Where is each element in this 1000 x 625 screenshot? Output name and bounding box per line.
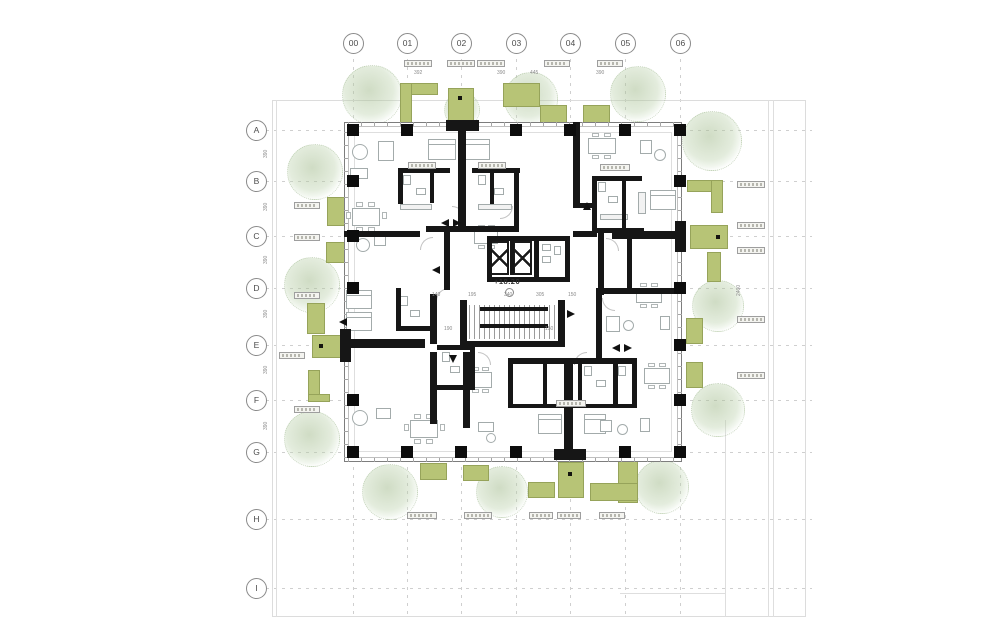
furniture-item — [606, 316, 620, 332]
furniture-item — [542, 244, 551, 251]
furniture-round-table — [654, 149, 666, 161]
wall-segment — [470, 345, 475, 389]
dimension-text: 2400 — [737, 285, 742, 296]
furniture-chair — [382, 212, 387, 219]
wall-segment — [675, 221, 686, 252]
annotation-label — [557, 512, 581, 519]
grid-marker-row-E: E — [246, 335, 267, 356]
annotation-label — [294, 234, 320, 241]
wall-segment — [430, 294, 437, 344]
structural-column — [674, 394, 686, 406]
elevator-shaft — [490, 241, 509, 275]
direction-arrow — [449, 355, 457, 363]
stair-flight-edge — [480, 324, 548, 328]
furniture-chair — [356, 202, 363, 207]
annotation-label — [737, 222, 765, 229]
wall-segment — [444, 232, 450, 290]
planter-tree-dot — [716, 235, 720, 239]
annotation-label — [737, 181, 765, 188]
site-line — [773, 100, 774, 617]
furniture-item — [660, 316, 670, 330]
furniture-round-table — [617, 424, 628, 435]
annotation-label — [544, 60, 570, 67]
grid-marker-row-C: C — [246, 226, 267, 247]
tree — [610, 66, 666, 122]
dimension-text: 392 — [414, 71, 422, 76]
furniture-item — [352, 208, 380, 226]
furniture-item — [618, 366, 626, 376]
furniture-counter — [400, 204, 432, 210]
site-line — [725, 420, 726, 617]
planter — [528, 482, 555, 498]
furniture-item — [450, 366, 460, 373]
furniture-item — [400, 296, 408, 306]
furniture-bed — [462, 139, 490, 160]
wall-segment — [514, 168, 519, 232]
planter — [307, 303, 325, 334]
furniture-chair — [404, 424, 409, 431]
furniture-round-table — [486, 433, 496, 443]
furniture-chair — [440, 424, 445, 431]
wall-segment — [430, 352, 437, 424]
furniture-bed — [428, 139, 456, 160]
structural-column — [674, 175, 686, 187]
dimension-text: 150 — [568, 293, 576, 298]
furniture-item — [542, 256, 551, 263]
wall-segment — [430, 173, 434, 203]
planter-tree-dot — [458, 96, 462, 100]
furniture-chair — [482, 389, 489, 393]
furniture-item — [478, 175, 486, 185]
structural-column — [401, 446, 413, 458]
structural-column — [674, 339, 686, 351]
planter — [690, 225, 728, 249]
wall-segment — [613, 358, 618, 408]
structural-column — [347, 446, 359, 458]
dimension-text: 445 — [530, 71, 538, 76]
wall-segment — [446, 120, 479, 131]
grid-marker-row-G: G — [246, 442, 267, 463]
annotation-label — [294, 292, 320, 299]
site-line — [276, 100, 277, 617]
annotation-label — [478, 162, 506, 169]
furniture-chair — [648, 385, 655, 389]
dimension-text: 390 — [264, 310, 269, 318]
dimension-text: 390 — [264, 366, 269, 374]
annotation-label — [737, 372, 765, 379]
structural-column — [674, 446, 686, 458]
tree — [635, 460, 689, 514]
planter — [558, 462, 584, 498]
furniture-item — [374, 236, 386, 246]
furniture-chair — [426, 439, 433, 444]
furniture-item — [608, 196, 618, 203]
site-line — [620, 593, 725, 594]
wall-segment — [592, 176, 597, 233]
furniture-round-table — [352, 410, 368, 426]
planter — [590, 483, 638, 501]
annotation-label — [408, 162, 436, 169]
furniture-item — [494, 188, 504, 195]
annotation-label — [447, 60, 475, 67]
furniture-chair — [478, 245, 485, 249]
wall-segment — [490, 168, 494, 204]
furniture-item — [478, 422, 494, 432]
grid-marker-row-H: H — [246, 509, 267, 530]
planter-tree-dot — [568, 472, 572, 476]
planter-tree-dot — [319, 344, 323, 348]
wall-segment — [627, 233, 632, 288]
wall-segment — [592, 176, 642, 181]
furniture-item — [410, 310, 420, 317]
tree — [284, 411, 340, 467]
tree — [691, 383, 745, 437]
structural-column — [401, 124, 413, 136]
direction-arrow — [583, 202, 591, 210]
annotation-label — [597, 60, 623, 67]
wall-segment — [460, 341, 565, 347]
structural-column — [674, 124, 686, 136]
grid-marker-col-00: 00 — [343, 33, 364, 54]
dimension-text: 340 — [504, 293, 512, 298]
furniture-chair — [659, 363, 666, 367]
furniture-chair — [651, 283, 658, 287]
furniture-item — [588, 138, 616, 154]
annotation-label — [556, 400, 586, 407]
furniture-counter — [638, 192, 646, 214]
structural-column — [619, 124, 631, 136]
grid-marker-col-05: 05 — [615, 33, 636, 54]
wall-segment — [534, 236, 539, 282]
planter — [707, 252, 721, 282]
wall-segment — [426, 226, 518, 232]
structural-column — [347, 394, 359, 406]
grid-marker-col-02: 02 — [451, 33, 472, 54]
furniture-item — [378, 141, 394, 161]
structural-column — [619, 446, 631, 458]
wall-segment — [596, 288, 682, 294]
wall-segment — [508, 358, 513, 408]
planter — [420, 463, 447, 480]
furniture-item — [644, 368, 670, 384]
dimension-text: 390 — [497, 71, 505, 76]
furniture-item — [598, 182, 606, 192]
furniture-chair — [346, 212, 351, 219]
structural-column — [674, 282, 686, 294]
structural-column — [510, 446, 522, 458]
dimension-text: 390 — [264, 203, 269, 211]
dimension-text: 390 — [264, 150, 269, 158]
wall-segment — [622, 181, 626, 233]
furniture-item — [640, 140, 652, 154]
annotation-label — [279, 352, 305, 359]
furniture-chair — [648, 363, 655, 367]
structural-column — [347, 175, 359, 187]
grid-marker-row-I: I — [246, 578, 267, 599]
site-line — [768, 100, 769, 617]
dimension-text: 190 — [444, 327, 452, 332]
planter — [463, 465, 489, 481]
grid-marker-col-03: 03 — [506, 33, 527, 54]
facade-mullions-bottom — [348, 458, 678, 462]
furniture-round-table — [623, 320, 634, 331]
grid-marker-row-D: D — [246, 278, 267, 299]
annotation-label — [529, 512, 553, 519]
wall-segment — [596, 294, 602, 358]
annotation-label — [464, 512, 492, 519]
planter — [686, 362, 703, 388]
furniture-chair — [592, 155, 599, 159]
annotation-label — [294, 406, 320, 413]
structural-column — [347, 124, 359, 136]
furniture-chair — [651, 304, 658, 308]
furniture-chair — [604, 133, 611, 137]
furniture-chair — [604, 155, 611, 159]
annotation-label — [407, 512, 437, 519]
furniture-item — [584, 366, 592, 376]
furniture-bed — [538, 414, 562, 434]
furniture-item — [640, 418, 650, 432]
structural-column — [347, 282, 359, 294]
wall-segment — [344, 339, 420, 347]
wall-segment — [396, 326, 434, 331]
annotation-label — [737, 247, 765, 254]
furniture-chair — [482, 367, 489, 371]
furniture-item — [596, 380, 606, 387]
direction-arrow — [432, 266, 440, 274]
direction-arrow — [567, 310, 575, 318]
wall-segment — [487, 236, 492, 282]
furniture-chair — [368, 202, 375, 207]
direction-arrow — [612, 344, 620, 352]
furniture-chair — [414, 439, 421, 444]
furniture-chair — [414, 414, 421, 419]
furniture-item — [416, 188, 426, 195]
wall-segment — [558, 300, 565, 346]
wall-segment — [565, 236, 570, 282]
structural-column — [564, 124, 576, 136]
annotation-label — [737, 316, 765, 323]
wall-segment — [510, 241, 514, 275]
stair-flight-edge — [480, 307, 548, 311]
dimension-text: 390 — [264, 256, 269, 264]
furniture-round-table — [352, 144, 368, 160]
annotation-label — [294, 202, 320, 209]
wall-segment — [463, 352, 470, 428]
furniture-chair — [592, 133, 599, 137]
wall-segment — [460, 300, 467, 346]
planter — [711, 180, 723, 213]
structural-column — [510, 124, 522, 136]
wall-segment — [573, 231, 597, 237]
planter — [400, 83, 412, 123]
direction-arrow — [453, 219, 461, 227]
furniture-item — [554, 246, 561, 255]
annotation-label — [477, 60, 505, 67]
planter — [308, 394, 330, 402]
direction-arrow — [339, 318, 347, 326]
tree — [342, 65, 402, 125]
wall-segment — [543, 363, 547, 408]
dimension-text: 195 — [468, 293, 476, 298]
wall-segment — [632, 358, 637, 408]
wall-segment — [398, 168, 403, 204]
wall-segment — [487, 236, 570, 241]
grid-marker-col-01: 01 — [397, 33, 418, 54]
grid-marker-row-F: F — [246, 390, 267, 411]
elevator-shaft — [513, 241, 532, 275]
dimension-text: 140 — [432, 293, 440, 298]
annotation-label — [600, 164, 630, 171]
level-annotation: +18.20 — [494, 277, 520, 286]
furniture-item — [600, 420, 612, 432]
dimension-text: 390 — [264, 422, 269, 430]
grid-marker-row-B: B — [246, 171, 267, 192]
wall-segment — [598, 233, 604, 295]
furniture-item — [403, 175, 411, 185]
furniture-bed — [650, 190, 676, 210]
annotation-label — [404, 60, 432, 67]
planter — [503, 83, 540, 107]
wall-segment — [458, 131, 466, 229]
grid-marker-col-04: 04 — [560, 33, 581, 54]
annotation-label — [599, 512, 625, 519]
dimension-text: 305 — [536, 293, 544, 298]
tree — [682, 111, 742, 171]
tree — [287, 144, 343, 200]
grid-marker-col-06: 06 — [670, 33, 691, 54]
direction-arrow — [624, 344, 632, 352]
furniture-chair — [640, 283, 647, 287]
structural-column — [347, 230, 359, 242]
furniture-item — [376, 408, 391, 419]
dimension-text: 150 — [545, 327, 553, 332]
wall-segment — [396, 288, 401, 330]
furniture-chair — [659, 385, 666, 389]
furniture-chair — [640, 304, 647, 308]
floor-plan-canvas: +18.203923904453901401953403051501901503… — [0, 0, 1000, 625]
planter — [686, 318, 703, 344]
direction-arrow — [441, 219, 449, 227]
dimension-text: 390 — [596, 71, 604, 76]
structural-column — [455, 446, 467, 458]
grid-marker-row-A: A — [246, 120, 267, 141]
